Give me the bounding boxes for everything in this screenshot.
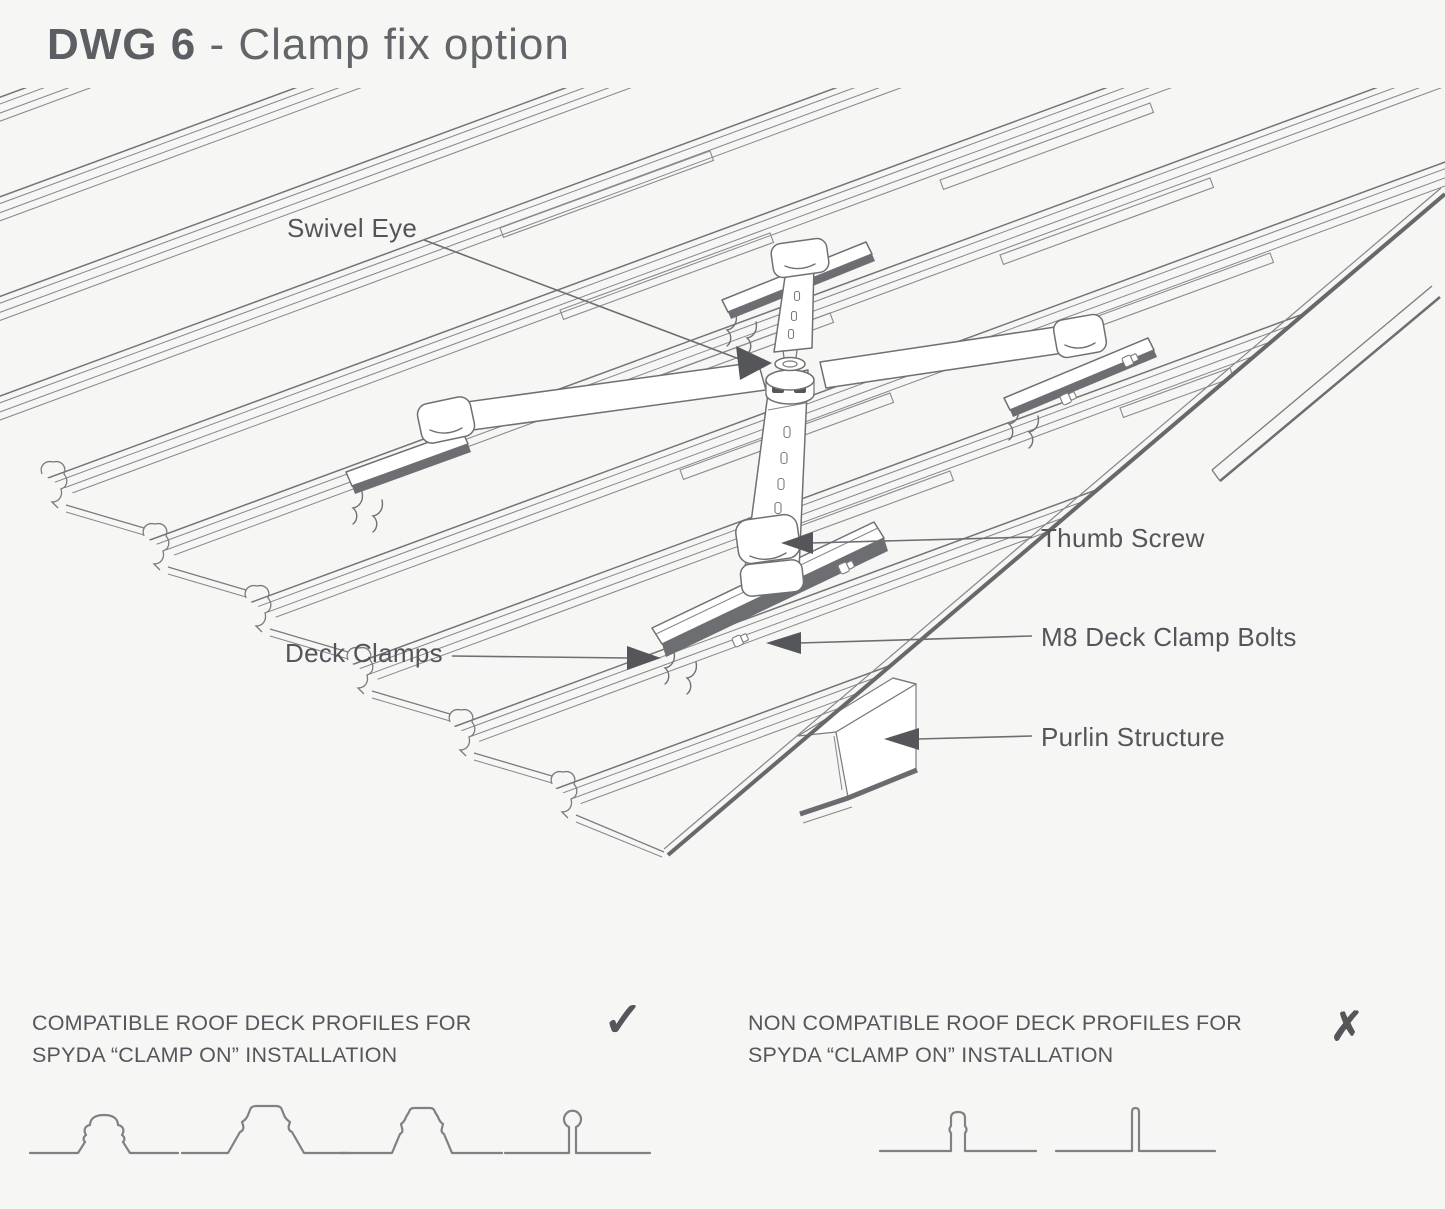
m8-bolts-arrow bbox=[766, 632, 801, 654]
label-swivel-eye: Swivel Eye bbox=[287, 213, 417, 244]
thumb-screw-knob bbox=[415, 395, 476, 445]
callouts bbox=[424, 240, 1032, 750]
cross-icon: ✗ bbox=[1330, 1003, 1364, 1051]
non-compatible-heading-line1: NON COMPATIBLE ROOF DECK PROFILES FOR bbox=[748, 1007, 1242, 1039]
thumb-screw-knob bbox=[1052, 313, 1108, 359]
sheet-lap-joints bbox=[500, 103, 1274, 557]
drawing-number: DWG 6 bbox=[47, 20, 196, 69]
profile-flat-standing-seam bbox=[1056, 1108, 1215, 1151]
profile-trapezoidal-rib bbox=[340, 1108, 502, 1153]
compatible-heading-line1: COMPATIBLE ROOF DECK PROFILES FOR bbox=[32, 1007, 471, 1039]
compatible-heading-line2: SPYDA “CLAMP ON” INSTALLATION bbox=[32, 1039, 471, 1071]
swivel-eye bbox=[766, 350, 814, 404]
thumb-screw bbox=[734, 513, 802, 565]
label-thumb-screw: Thumb Screw bbox=[1041, 523, 1205, 554]
anchor-foot bbox=[739, 559, 804, 597]
left-arm bbox=[452, 362, 766, 432]
label-m8-deck-clamp-bolts: M8 Deck Clamp Bolts bbox=[1041, 622, 1297, 653]
profile-rounded-bulb-rib bbox=[30, 1115, 178, 1153]
drawing-name: - Clamp fix option bbox=[196, 20, 570, 69]
profile-wide-trapezoidal-rib bbox=[182, 1106, 350, 1153]
label-purlin-structure: Purlin Structure bbox=[1041, 722, 1225, 753]
label-deck-clamps: Deck Clamps bbox=[285, 638, 443, 669]
profile-rounded-standing-seam bbox=[880, 1112, 1036, 1151]
check-icon: ✓ bbox=[603, 997, 643, 1045]
profile-bulb-standing-seam bbox=[505, 1111, 650, 1153]
non-compatible-profiles bbox=[880, 1108, 1215, 1151]
compatible-profiles bbox=[30, 1106, 650, 1153]
deck-clamps-arrow bbox=[627, 646, 661, 670]
m8-bolt bbox=[732, 632, 750, 647]
non-compatible-heading: NON COMPATIBLE ROOF DECK PROFILES FOR SP… bbox=[748, 1007, 1242, 1071]
compatible-heading: COMPATIBLE ROOF DECK PROFILES FOR SPYDA … bbox=[32, 1007, 471, 1071]
right-arm bbox=[820, 326, 1070, 388]
page-title: DWG 6 - Clamp fix option bbox=[47, 20, 570, 70]
non-compatible-heading-line2: SPYDA “CLAMP ON” INSTALLATION bbox=[748, 1039, 1242, 1071]
drawing-page: DWG 6 - Clamp fix option Swivel Eye Deck… bbox=[0, 0, 1445, 1209]
thumb-screw-knob bbox=[770, 237, 830, 278]
